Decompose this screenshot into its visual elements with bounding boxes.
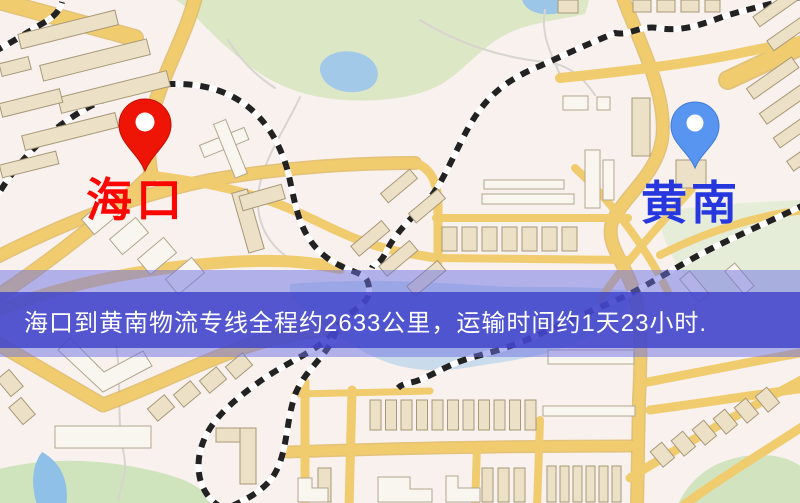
- field-bottom-left: [0, 461, 215, 503]
- destination-city-label: 黄南: [641, 181, 741, 227]
- map-canvas: [0, 0, 800, 503]
- route-info-banner: 海口到黄南物流专线全程约2633公里，运输时间约1天23小时.: [0, 292, 800, 348]
- origin-pin-icon[interactable]: [119, 99, 171, 171]
- map-viewport[interactable]: 海口 黄南 海口到黄南物流专线全程约2633公里，运输时间约1天23小时.: [0, 0, 800, 503]
- water-bottom-left: [33, 452, 67, 503]
- origin-city-label: 海口: [86, 178, 186, 224]
- route-banner-text: 海口到黄南物流专线全程约2633公里，运输时间约1天23小时.: [0, 303, 707, 338]
- destination-pin-icon[interactable]: [671, 102, 719, 168]
